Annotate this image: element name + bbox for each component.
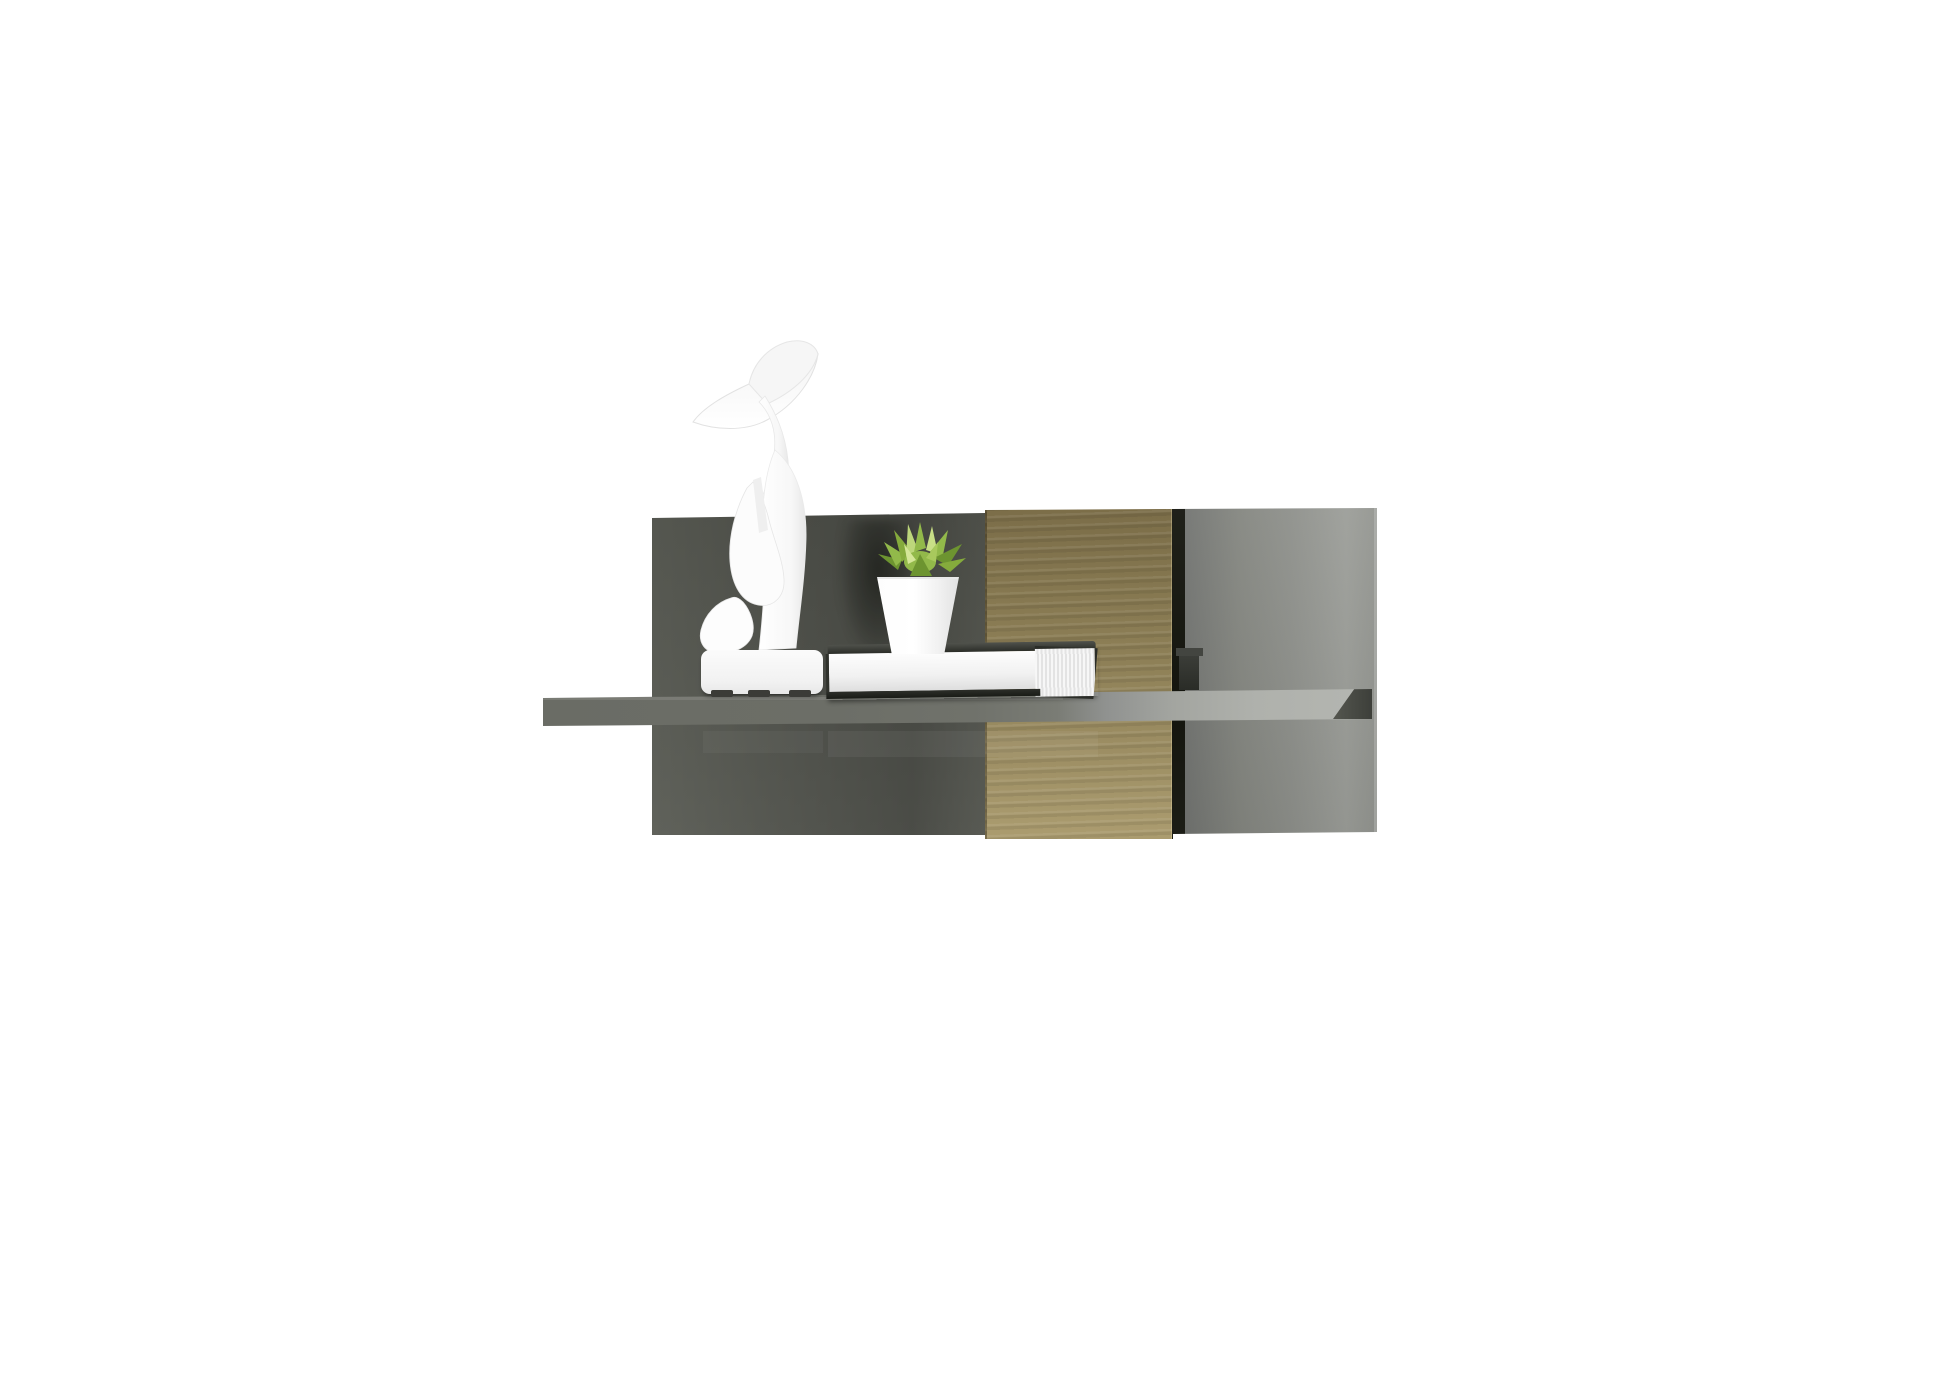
silence-figurine: [655, 330, 835, 660]
base-foot-pad: [748, 690, 770, 697]
product-photo-stage: [0, 0, 1940, 1373]
book-front-pages: [826, 651, 1042, 692]
panel-right-edge-highlight: [1374, 505, 1377, 839]
decor-book: [826, 641, 1099, 700]
figurine-base: [701, 650, 823, 694]
groove-connector: [1179, 648, 1199, 690]
book-reflection: [828, 731, 1098, 757]
succulent-plant: [868, 520, 972, 584]
book-fore-edge: [1035, 645, 1099, 700]
base-foot-pad: [711, 690, 733, 697]
shelf-end-shadow: [1333, 688, 1372, 720]
back-panel-grey-right: [1185, 505, 1377, 839]
base-foot-pad: [789, 690, 811, 697]
base-reflection: [703, 731, 823, 753]
